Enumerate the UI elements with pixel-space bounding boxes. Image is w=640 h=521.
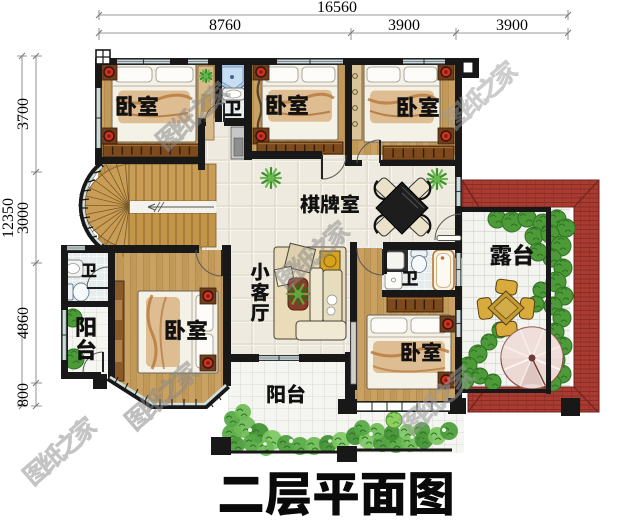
svg-text:16560: 16560 [317, 0, 357, 16]
svg-text:3900: 3900 [496, 17, 528, 34]
svg-text:8760: 8760 [209, 17, 241, 34]
svg-text:800: 800 [15, 383, 32, 407]
svg-text:3000: 3000 [15, 202, 32, 234]
svg-text:4860: 4860 [15, 307, 32, 339]
svg-text:3700: 3700 [15, 98, 32, 130]
svg-text:3900: 3900 [388, 17, 420, 34]
